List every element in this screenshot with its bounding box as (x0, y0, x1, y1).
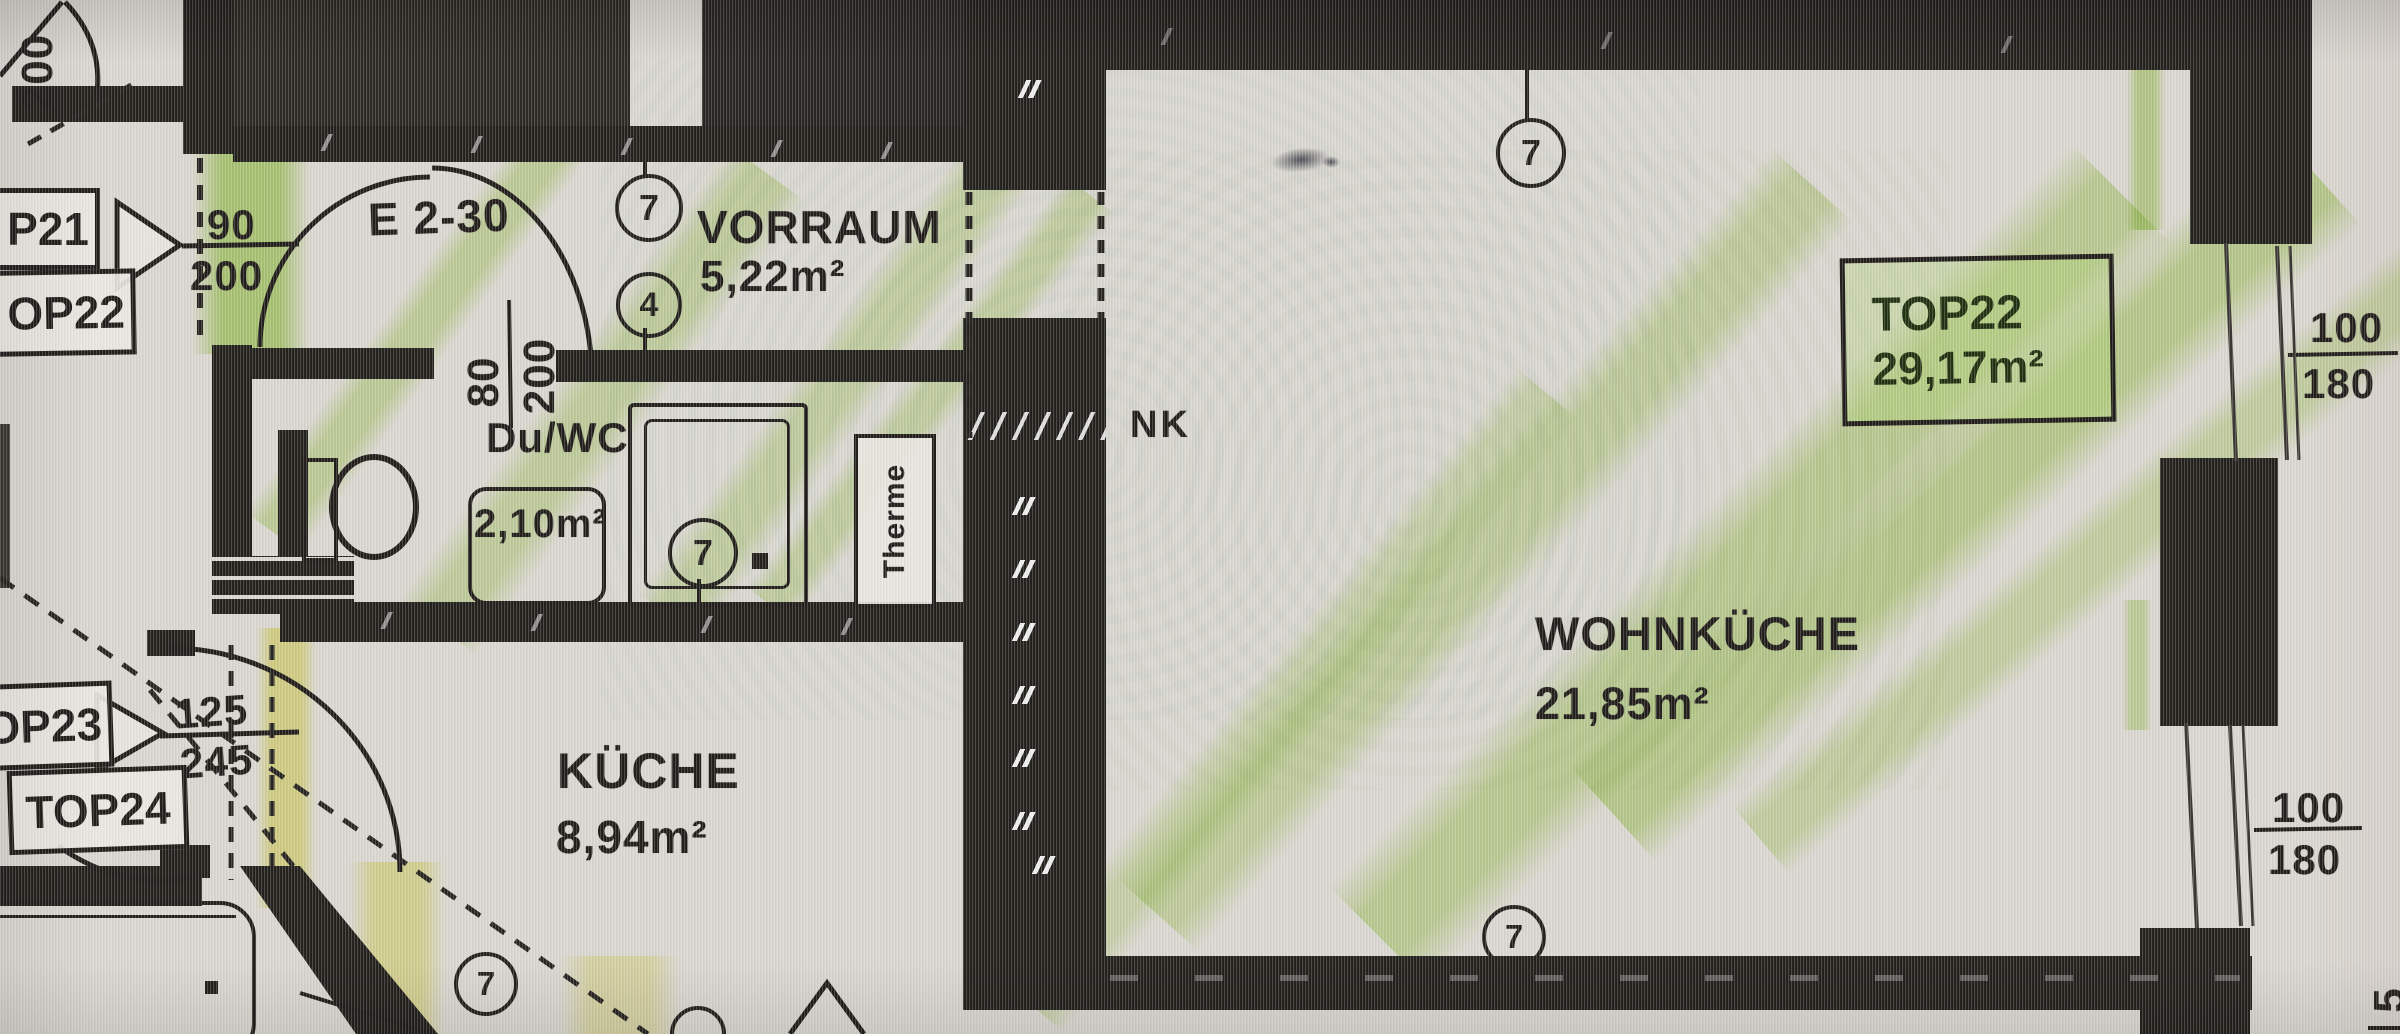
unit-box-top22: OP22 (0, 268, 137, 357)
therme-label: Therme (878, 464, 912, 578)
plan-linework (0, 0, 2400, 1034)
dim-80-den: 200 (515, 338, 565, 414)
room-name-vorraum: VORRAUM (697, 200, 942, 254)
badge-label: TOP22 (1871, 285, 2023, 343)
ref-number: 4 (640, 286, 659, 325)
unit-badge-top22: TOP22 29,17m² (1840, 254, 2117, 427)
door-arc-corner (65, 2, 98, 94)
edge-dim-partial: 5 (2365, 987, 2400, 1012)
entrance-door-label: E 2-30 (367, 188, 510, 247)
ref-stem (1508, 959, 1512, 969)
ref-number: 7 (639, 187, 659, 229)
toilet-bowl (332, 457, 416, 557)
dim-125-den: 245 (178, 736, 254, 789)
ref-number: 7 (1505, 918, 1523, 956)
dim-125: 125 (173, 686, 249, 739)
dim-80: 80 (459, 357, 509, 408)
room-name-wohnkueche: WOHNKÜCHE (1535, 606, 1860, 661)
window-2-pane-line-a (2230, 725, 2241, 926)
ref-circle-7-wohnkueche-bottom: 7 (1482, 905, 1546, 969)
unit-box-label: OP22 (7, 285, 126, 341)
pen-smudge (1322, 156, 1340, 168)
label-nk: NK (1130, 404, 1191, 447)
window-2-outer-line (2186, 723, 2197, 928)
unit-box-top24: TOP24 (7, 765, 190, 855)
ref-stem (1525, 70, 1529, 120)
window-1-dim-100: 100 (2310, 304, 2383, 352)
dim-90: 90 (207, 201, 256, 249)
ref-circle-7-shower: 7 (668, 518, 738, 588)
unit-box-top23: OP23 (0, 681, 114, 772)
therme-box: Therme (854, 434, 936, 608)
room-area-wohnkueche: 21,85m² (1535, 678, 1710, 730)
ref-number: 7 (477, 965, 495, 1003)
window-2-dim-180: 180 (2268, 836, 2341, 884)
fraction-bar-window-1 (2288, 353, 2398, 355)
room-area-vorraum: 5,22m² (700, 252, 845, 302)
unit-box-label: P21 (7, 202, 89, 256)
ref-number: 7 (1521, 132, 1541, 174)
window-2-dim-100: 100 (2272, 784, 2345, 832)
unit-box-top21: P21 (0, 188, 100, 270)
ref-circle-4-vorraum: 4 (616, 272, 682, 338)
window-1-pane-line-a (2277, 246, 2287, 460)
badge-area: 29,17m² (1872, 340, 2044, 396)
ref-stem (643, 158, 647, 176)
window-1-dim-180: 180 (2302, 360, 2375, 408)
room-name-kueche: KÜCHE (557, 742, 740, 800)
room-name-duwc: Du/WC (486, 414, 629, 462)
room-area-duwc: 2,10m² (474, 502, 607, 547)
window-1-outer-line (2226, 243, 2236, 461)
ref-stem (643, 328, 647, 352)
floorplan-photo: Therme (0, 0, 2400, 1034)
ref-circle-7-vorraum: 7 (615, 174, 683, 242)
ref-stem (697, 579, 701, 605)
partial-arch (790, 983, 864, 1034)
corner-dim-200: 200 (13, 34, 63, 110)
window-2-pane-line-b (2243, 725, 2253, 926)
ref-circle-7-kueche: 7 (454, 952, 518, 1016)
wall-diagonal (240, 866, 438, 1034)
room-area-kueche: 8,94m² (556, 810, 708, 864)
unit-box-label: TOP24 (25, 780, 172, 839)
fraction-bar-80-200 (509, 300, 511, 428)
unit-box-label: OP23 (0, 697, 103, 755)
dim-90-den: 200 (190, 252, 263, 300)
ref-number: 7 (693, 532, 713, 574)
ref-circle-7-wohnkueche-top: 7 (1496, 118, 1566, 188)
